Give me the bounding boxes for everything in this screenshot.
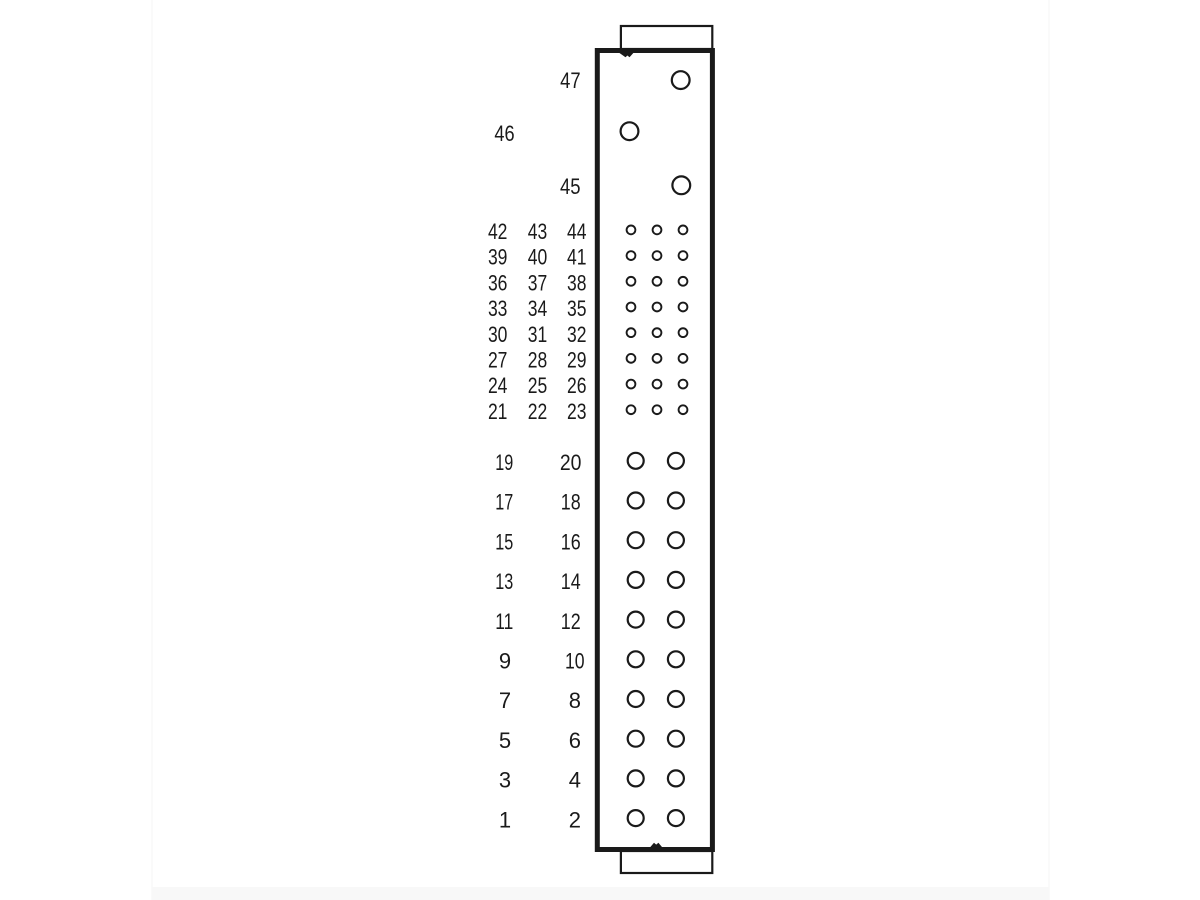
svg-text:9: 9	[499, 649, 511, 674]
svg-text:6: 6	[569, 728, 581, 753]
svg-text:30: 30	[488, 322, 508, 347]
svg-text:31: 31	[528, 322, 548, 347]
svg-text:35: 35	[567, 296, 587, 321]
svg-text:17: 17	[495, 490, 513, 515]
svg-text:40: 40	[528, 245, 548, 270]
svg-text:24: 24	[488, 373, 508, 398]
svg-text:14: 14	[561, 569, 581, 594]
svg-text:3: 3	[499, 768, 511, 793]
svg-text:4: 4	[569, 768, 581, 793]
svg-text:11: 11	[495, 609, 513, 634]
svg-text:26: 26	[567, 373, 587, 398]
svg-text:37: 37	[528, 270, 548, 295]
svg-text:10: 10	[565, 649, 585, 674]
svg-text:5: 5	[499, 728, 511, 753]
svg-text:32: 32	[567, 322, 587, 347]
svg-text:27: 27	[488, 348, 508, 373]
svg-text:12: 12	[561, 609, 581, 634]
svg-text:22: 22	[528, 399, 548, 424]
svg-text:47: 47	[560, 68, 581, 93]
svg-text:7: 7	[499, 688, 511, 713]
svg-text:1: 1	[499, 807, 511, 832]
svg-text:19: 19	[495, 450, 513, 475]
svg-text:34: 34	[528, 296, 548, 321]
svg-text:13: 13	[495, 569, 513, 594]
svg-text:38: 38	[567, 270, 587, 295]
svg-text:15: 15	[495, 529, 513, 554]
svg-text:29: 29	[567, 348, 587, 373]
svg-text:39: 39	[488, 245, 508, 270]
svg-text:43: 43	[528, 219, 548, 244]
svg-text:42: 42	[488, 219, 508, 244]
svg-text:20: 20	[560, 450, 582, 475]
svg-text:28: 28	[528, 348, 548, 373]
svg-text:44: 44	[567, 219, 587, 244]
svg-text:25: 25	[528, 373, 548, 398]
svg-text:41: 41	[567, 245, 587, 270]
svg-text:16: 16	[561, 529, 581, 554]
svg-text:8: 8	[569, 688, 581, 713]
svg-text:23: 23	[567, 399, 587, 424]
svg-text:21: 21	[488, 399, 508, 424]
svg-text:45: 45	[560, 174, 581, 199]
svg-text:2: 2	[569, 807, 581, 832]
svg-text:18: 18	[561, 490, 581, 515]
svg-text:46: 46	[494, 121, 514, 146]
svg-text:36: 36	[488, 270, 508, 295]
svg-text:33: 33	[488, 296, 508, 321]
